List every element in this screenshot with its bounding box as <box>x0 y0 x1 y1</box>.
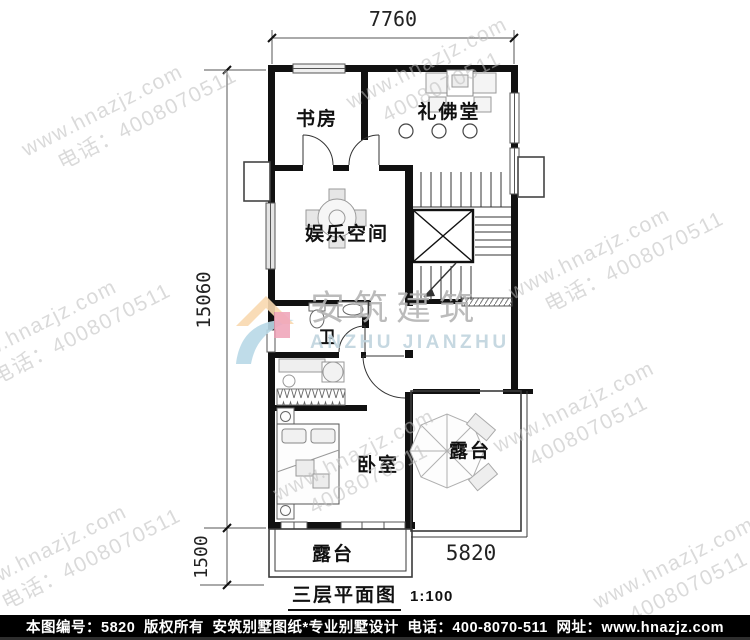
label-bedroom: 卧室 <box>357 453 399 476</box>
exterior-piers <box>244 157 544 201</box>
drawing-scale: 1:100 <box>410 588 453 605</box>
footer-plan-number: 本图编号：5820 <box>26 616 135 637</box>
footer-copyright: 版权所有 <box>144 616 204 637</box>
footer-brand: 安筑别墅图纸*专业别墅设计 <box>213 616 399 637</box>
drawing-title-block: 三层平面图 1:100 <box>288 580 453 611</box>
dressing-furniture <box>277 359 345 405</box>
footer-website: 网址：www.hnazjz.com <box>556 616 723 637</box>
bedroom-furniture <box>277 408 339 519</box>
dim-left-total: 15060 <box>193 271 215 328</box>
staircase <box>413 172 511 300</box>
label-study: 书房 <box>296 107 338 130</box>
dim-top-width: 7760 <box>369 7 417 31</box>
label-bathroom: 卫 <box>319 328 336 348</box>
floorplan-page: 7760 15060 1500 5820 <box>0 0 750 640</box>
label-terrace-right: 露台 <box>449 439 491 462</box>
label-terrace-bottom: 露台 <box>312 542 354 565</box>
label-buddha-hall: 礼佛堂 <box>417 100 480 123</box>
footer-phone: 电话：400-8070-511 <box>407 616 548 637</box>
floor-plan-drawing: 7760 15060 1500 5820 <box>0 0 750 640</box>
drawing-title: 三层平面图 <box>288 580 401 611</box>
dim-left-terrace: 1500 <box>191 535 212 578</box>
dim-bottom-terrace-width: 5820 <box>446 541 497 565</box>
bathroom-fixtures <box>309 302 368 328</box>
label-entertainment: 娱乐空间 <box>305 222 389 245</box>
footer-bar: 本图编号：5820 版权所有 安筑别墅图纸*专业别墅设计 电话：400-8070… <box>0 615 750 640</box>
